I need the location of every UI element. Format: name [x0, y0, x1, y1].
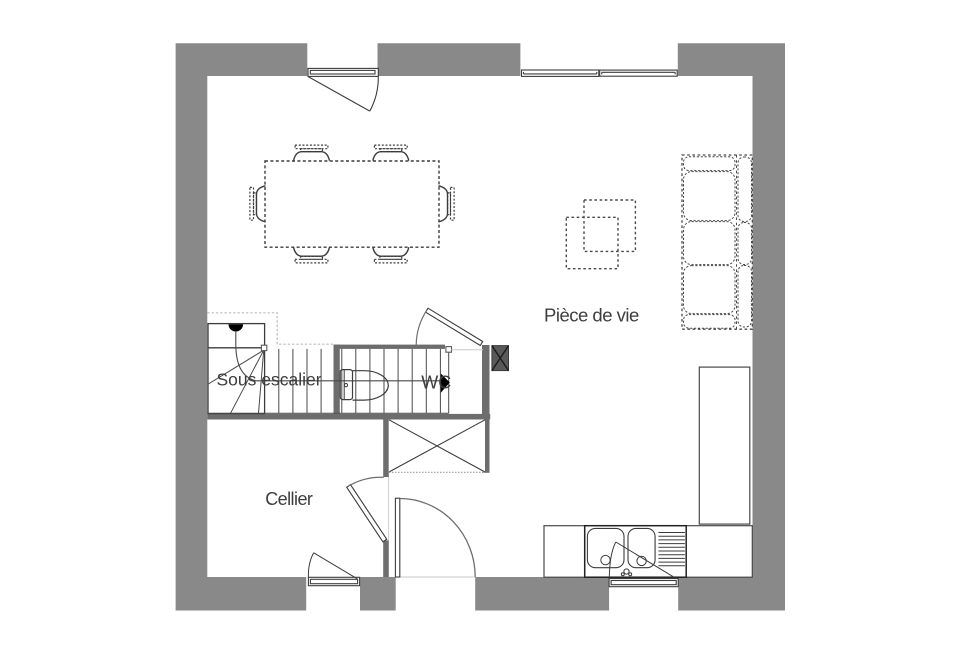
svg-text:Cellier: Cellier: [265, 489, 313, 509]
svg-text:WC: WC: [421, 373, 451, 393]
svg-text:Sous escalier: Sous escalier: [217, 369, 322, 389]
svg-text:Pièce de vie: Pièce de vie: [544, 304, 639, 325]
